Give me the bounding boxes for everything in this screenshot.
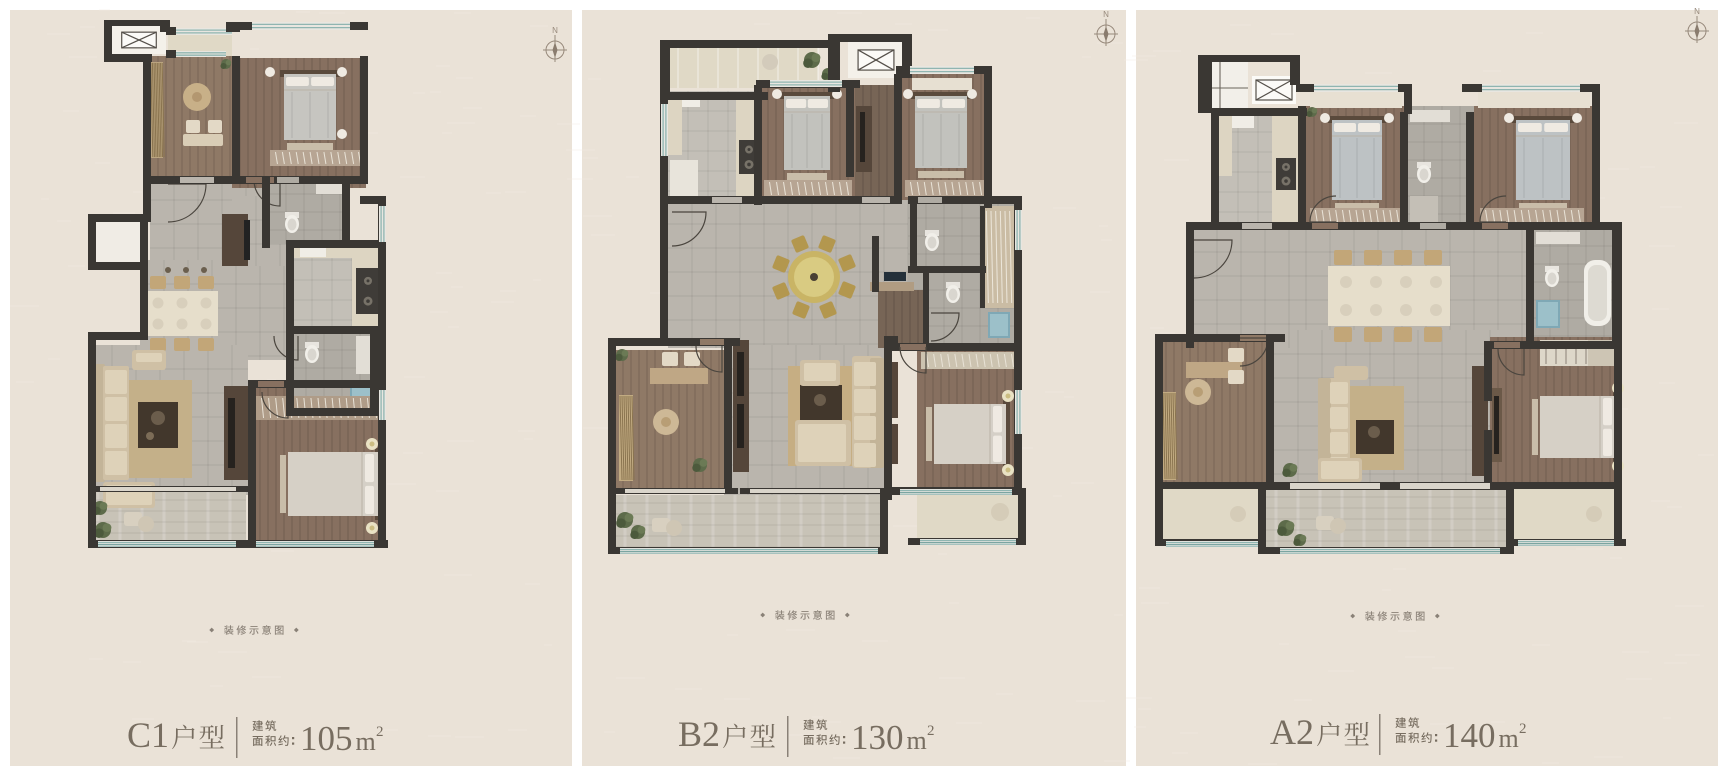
- svg-text:N: N: [1694, 7, 1700, 16]
- svg-text:2: 2: [927, 723, 935, 739]
- svg-text:N: N: [552, 26, 558, 35]
- svg-text:m: m: [1499, 724, 1519, 753]
- svg-text:105: 105: [300, 719, 353, 758]
- svg-text:m: m: [356, 727, 376, 756]
- svg-text:140: 140: [1443, 716, 1496, 755]
- svg-text:2: 2: [376, 724, 384, 740]
- svg-text:m: m: [907, 726, 927, 755]
- svg-text:N: N: [1103, 10, 1109, 19]
- svg-text:B2: B2: [678, 714, 720, 754]
- svg-text:A2: A2: [1270, 712, 1314, 752]
- svg-text:2: 2: [1519, 721, 1527, 737]
- svg-text:C1: C1: [127, 715, 169, 755]
- svg-text:130: 130: [851, 718, 904, 757]
